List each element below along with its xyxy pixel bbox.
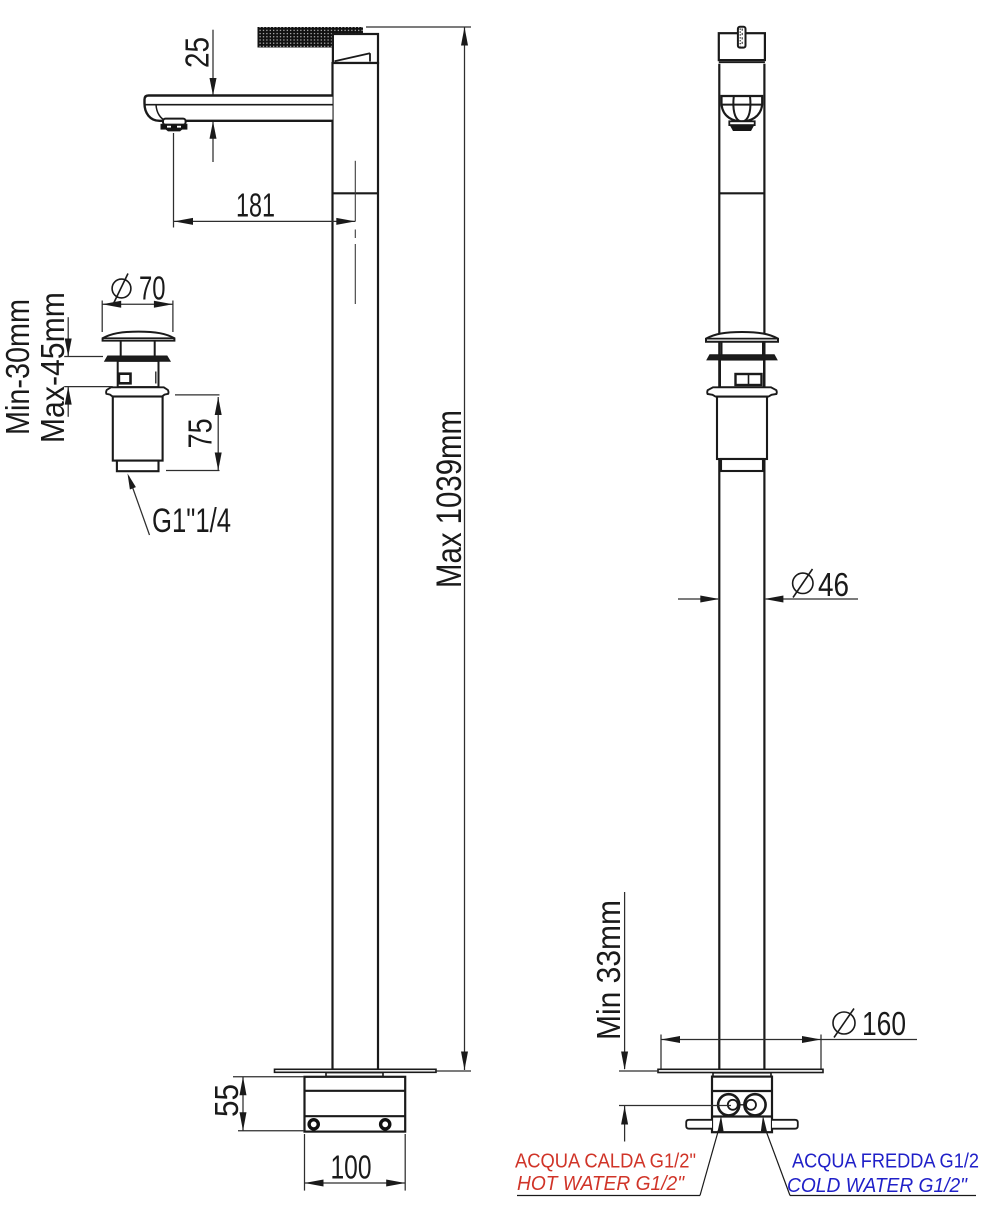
svg-text:181: 181: [236, 188, 275, 225]
svg-text:Max 1039mm: Max 1039mm: [430, 410, 469, 588]
svg-text:160: 160: [862, 1006, 906, 1043]
svg-text:Max-45mm: Max-45mm: [35, 292, 72, 443]
svg-text:HOT WATER G1/2": HOT WATER G1/2": [517, 1172, 686, 1195]
svg-text:46: 46: [818, 567, 849, 604]
svg-text:G1"1/4: G1"1/4: [152, 502, 231, 540]
svg-text:COLD WATER G1/2": COLD WATER G1/2": [787, 1174, 969, 1197]
svg-text:Min-30mm: Min-30mm: [0, 299, 37, 435]
svg-text:70: 70: [139, 271, 166, 308]
svg-text:Min 33mm: Min 33mm: [591, 900, 628, 1040]
svg-text:100: 100: [331, 1150, 372, 1187]
svg-text:ACQUA CALDA G1/2": ACQUA CALDA G1/2": [515, 1150, 696, 1173]
svg-text:25: 25: [180, 37, 217, 68]
svg-text:ACQUA FREDDA G1/2: ACQUA FREDDA G1/2: [792, 1150, 979, 1173]
svg-text:75: 75: [182, 418, 219, 448]
svg-text:55: 55: [209, 1084, 246, 1117]
